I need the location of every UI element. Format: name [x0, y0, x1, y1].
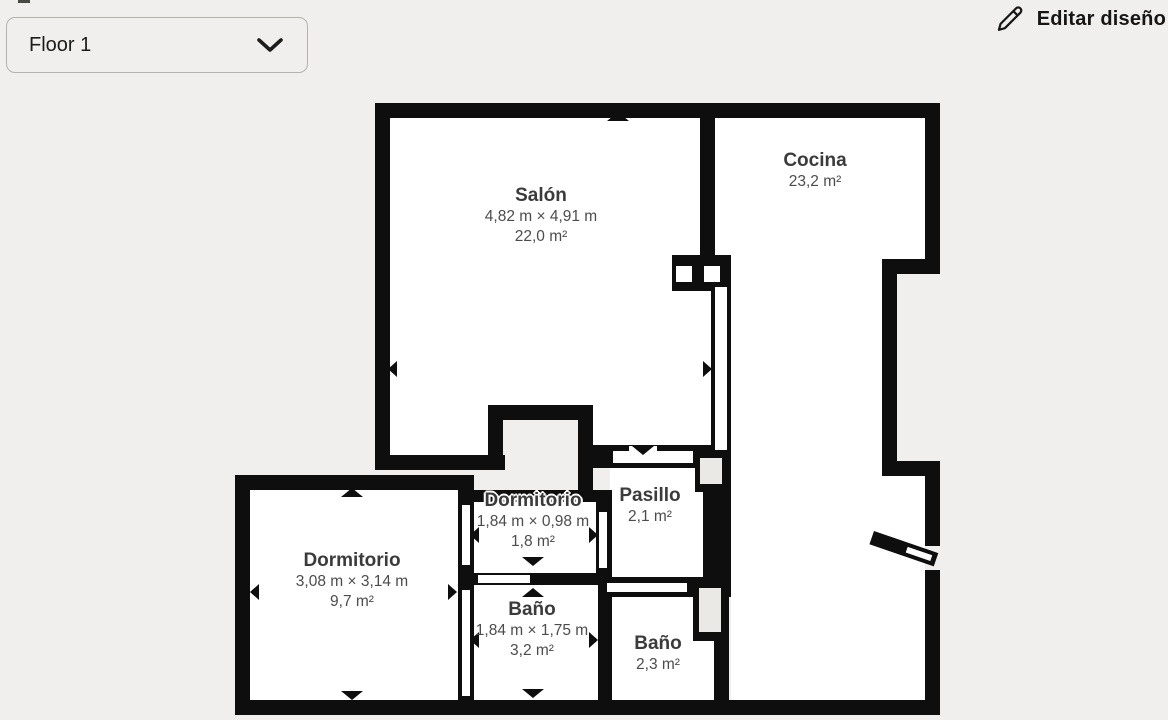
room-name: Pasillo: [600, 484, 700, 507]
wall: [375, 103, 940, 118]
room-area-value: 3,2 m²: [432, 641, 632, 661]
room-dimensions: 3,08 m × 3,14 m: [252, 572, 452, 592]
edit-design-label: Editar diseño: [1037, 8, 1166, 31]
door-opening: [478, 575, 530, 583]
door-leaf: [699, 588, 721, 632]
wall: [925, 103, 940, 274]
room-label-pasillo: Pasillo 2,1 m²: [600, 484, 700, 527]
window-glass: [715, 287, 727, 450]
arrow-up-icon: [522, 588, 544, 597]
floorplan-viewer: Floor 1 Editar diseño: [0, 0, 1168, 720]
wall: [235, 700, 940, 715]
room-area-value: 1,8 m²: [433, 532, 633, 552]
arrow-up-icon: [607, 112, 629, 121]
arrow-right-icon: [703, 361, 712, 377]
room-label-bano-right: Baño 2,3 m²: [608, 632, 708, 675]
floor-selector-value: Floor 1: [29, 34, 91, 57]
room-area-value: 2,1 m²: [600, 507, 700, 527]
wall: [925, 570, 940, 715]
room-name: Salón: [441, 184, 641, 207]
wall: [375, 455, 505, 470]
door-panel: [676, 266, 692, 282]
pencil-icon: [996, 5, 1024, 33]
room-area-value: 9,7 m²: [252, 592, 452, 612]
wall: [714, 641, 729, 715]
room-label-dormitorio-left: Dormitorio 3,08 m × 3,14 m 9,7 m²: [252, 549, 452, 612]
room-label-cocina: Cocina 23,2 m²: [715, 149, 915, 192]
arrow-down-icon: [522, 689, 544, 698]
top-edge-mark: [18, 0, 30, 3]
wall: [882, 259, 897, 476]
void-facade-notch: [897, 274, 941, 461]
edit-design-button[interactable]: Editar diseño: [988, 1, 1168, 37]
wall: [925, 461, 940, 546]
arrow-down-icon: [632, 446, 654, 455]
room-area-value: 23,2 m²: [715, 172, 915, 192]
door-panel: [704, 266, 720, 282]
arrow-left-icon: [388, 361, 397, 377]
floor-selector-dropdown[interactable]: Floor 1: [6, 17, 308, 73]
door-leaf: [700, 458, 722, 484]
arrow-down-icon: [522, 557, 544, 566]
chevron-down-icon: [255, 36, 285, 54]
room-dimensions: 4,82 m × 4,91 m: [441, 207, 641, 227]
wall: [375, 103, 390, 470]
arrow-down-icon: [341, 691, 363, 700]
room-dimensions: 1,84 m × 1,75 m: [432, 621, 632, 641]
window-frame: [727, 287, 731, 450]
arrow-up-icon: [341, 488, 363, 497]
wall: [235, 475, 250, 715]
void-alcove-upper: [503, 420, 578, 470]
room-label-bano-middle: Baño 1,84 m × 1,75 m 3,2 m²: [432, 598, 632, 661]
room-name: Baño: [432, 598, 632, 621]
room-label-salon: Salón 4,82 m × 4,91 m 22,0 m²: [441, 184, 641, 247]
void-alcove-lower: [467, 467, 578, 490]
room-name: Dormitorio: [252, 549, 452, 572]
door-opening: [607, 583, 687, 592]
wall: [703, 492, 731, 577]
room-name: Baño: [608, 632, 708, 655]
room-name: Cocina: [715, 149, 915, 172]
wall: [700, 103, 715, 258]
room-area-value: 22,0 m²: [441, 227, 641, 247]
room-area-value: 2,3 m²: [608, 655, 708, 675]
